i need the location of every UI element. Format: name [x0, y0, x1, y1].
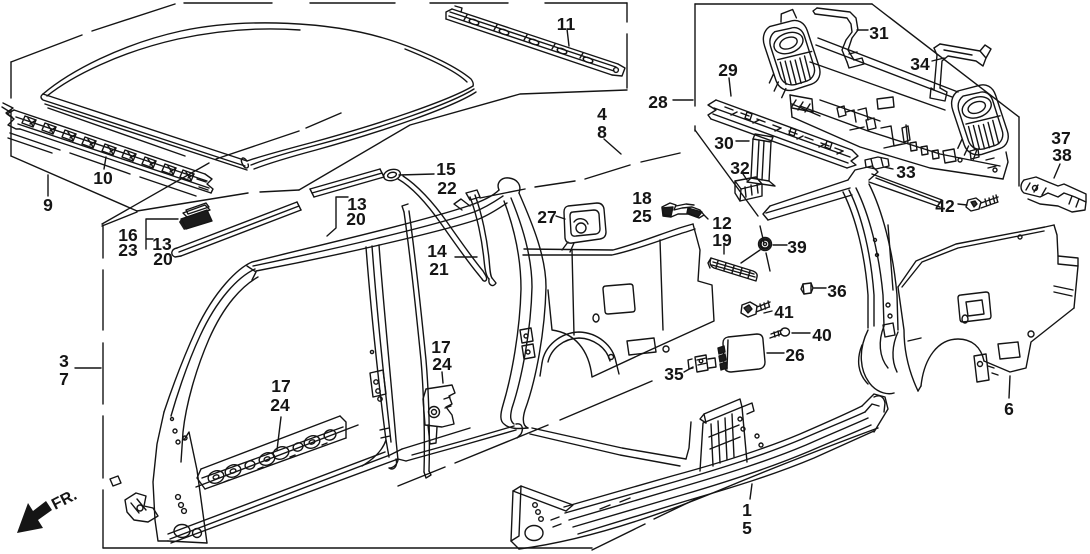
svg-text:36: 36 — [827, 281, 847, 301]
svg-text:4: 4 — [597, 104, 607, 124]
svg-text:17: 17 — [271, 376, 290, 396]
svg-text:25: 25 — [632, 206, 652, 226]
svg-text:30: 30 — [714, 133, 734, 153]
svg-text:35: 35 — [664, 364, 684, 384]
svg-text:32: 32 — [730, 158, 750, 178]
svg-text:6: 6 — [1004, 399, 1014, 419]
svg-text:39: 39 — [787, 237, 807, 257]
svg-text:27: 27 — [537, 207, 556, 227]
svg-text:5: 5 — [742, 518, 752, 538]
svg-text:33: 33 — [896, 162, 916, 182]
svg-text:40: 40 — [812, 325, 832, 345]
svg-text:1: 1 — [742, 500, 752, 520]
svg-text:18: 18 — [632, 188, 652, 208]
svg-text:FR.: FR. — [49, 487, 80, 514]
svg-text:8: 8 — [597, 122, 607, 142]
svg-text:28: 28 — [648, 92, 668, 112]
svg-text:29: 29 — [718, 60, 738, 80]
svg-text:20: 20 — [153, 249, 173, 269]
svg-text:19: 19 — [712, 230, 732, 250]
svg-text:11: 11 — [557, 14, 576, 34]
svg-text:9: 9 — [43, 195, 53, 215]
svg-text:15: 15 — [436, 159, 456, 179]
svg-text:21: 21 — [429, 259, 449, 279]
svg-text:24: 24 — [432, 354, 452, 374]
svg-text:3: 3 — [59, 351, 69, 371]
svg-text:7: 7 — [59, 369, 69, 389]
svg-text:38: 38 — [1052, 145, 1072, 165]
svg-text:41: 41 — [774, 302, 794, 322]
svg-text:22: 22 — [437, 178, 457, 198]
svg-text:42: 42 — [935, 196, 955, 216]
svg-text:31: 31 — [869, 23, 889, 43]
svg-text:23: 23 — [118, 240, 138, 260]
svg-text:24: 24 — [270, 395, 290, 415]
svg-text:34: 34 — [910, 54, 930, 74]
svg-text:14: 14 — [427, 241, 447, 261]
svg-text:20: 20 — [346, 209, 366, 229]
svg-text:26: 26 — [785, 345, 805, 365]
svg-text:10: 10 — [93, 168, 113, 188]
